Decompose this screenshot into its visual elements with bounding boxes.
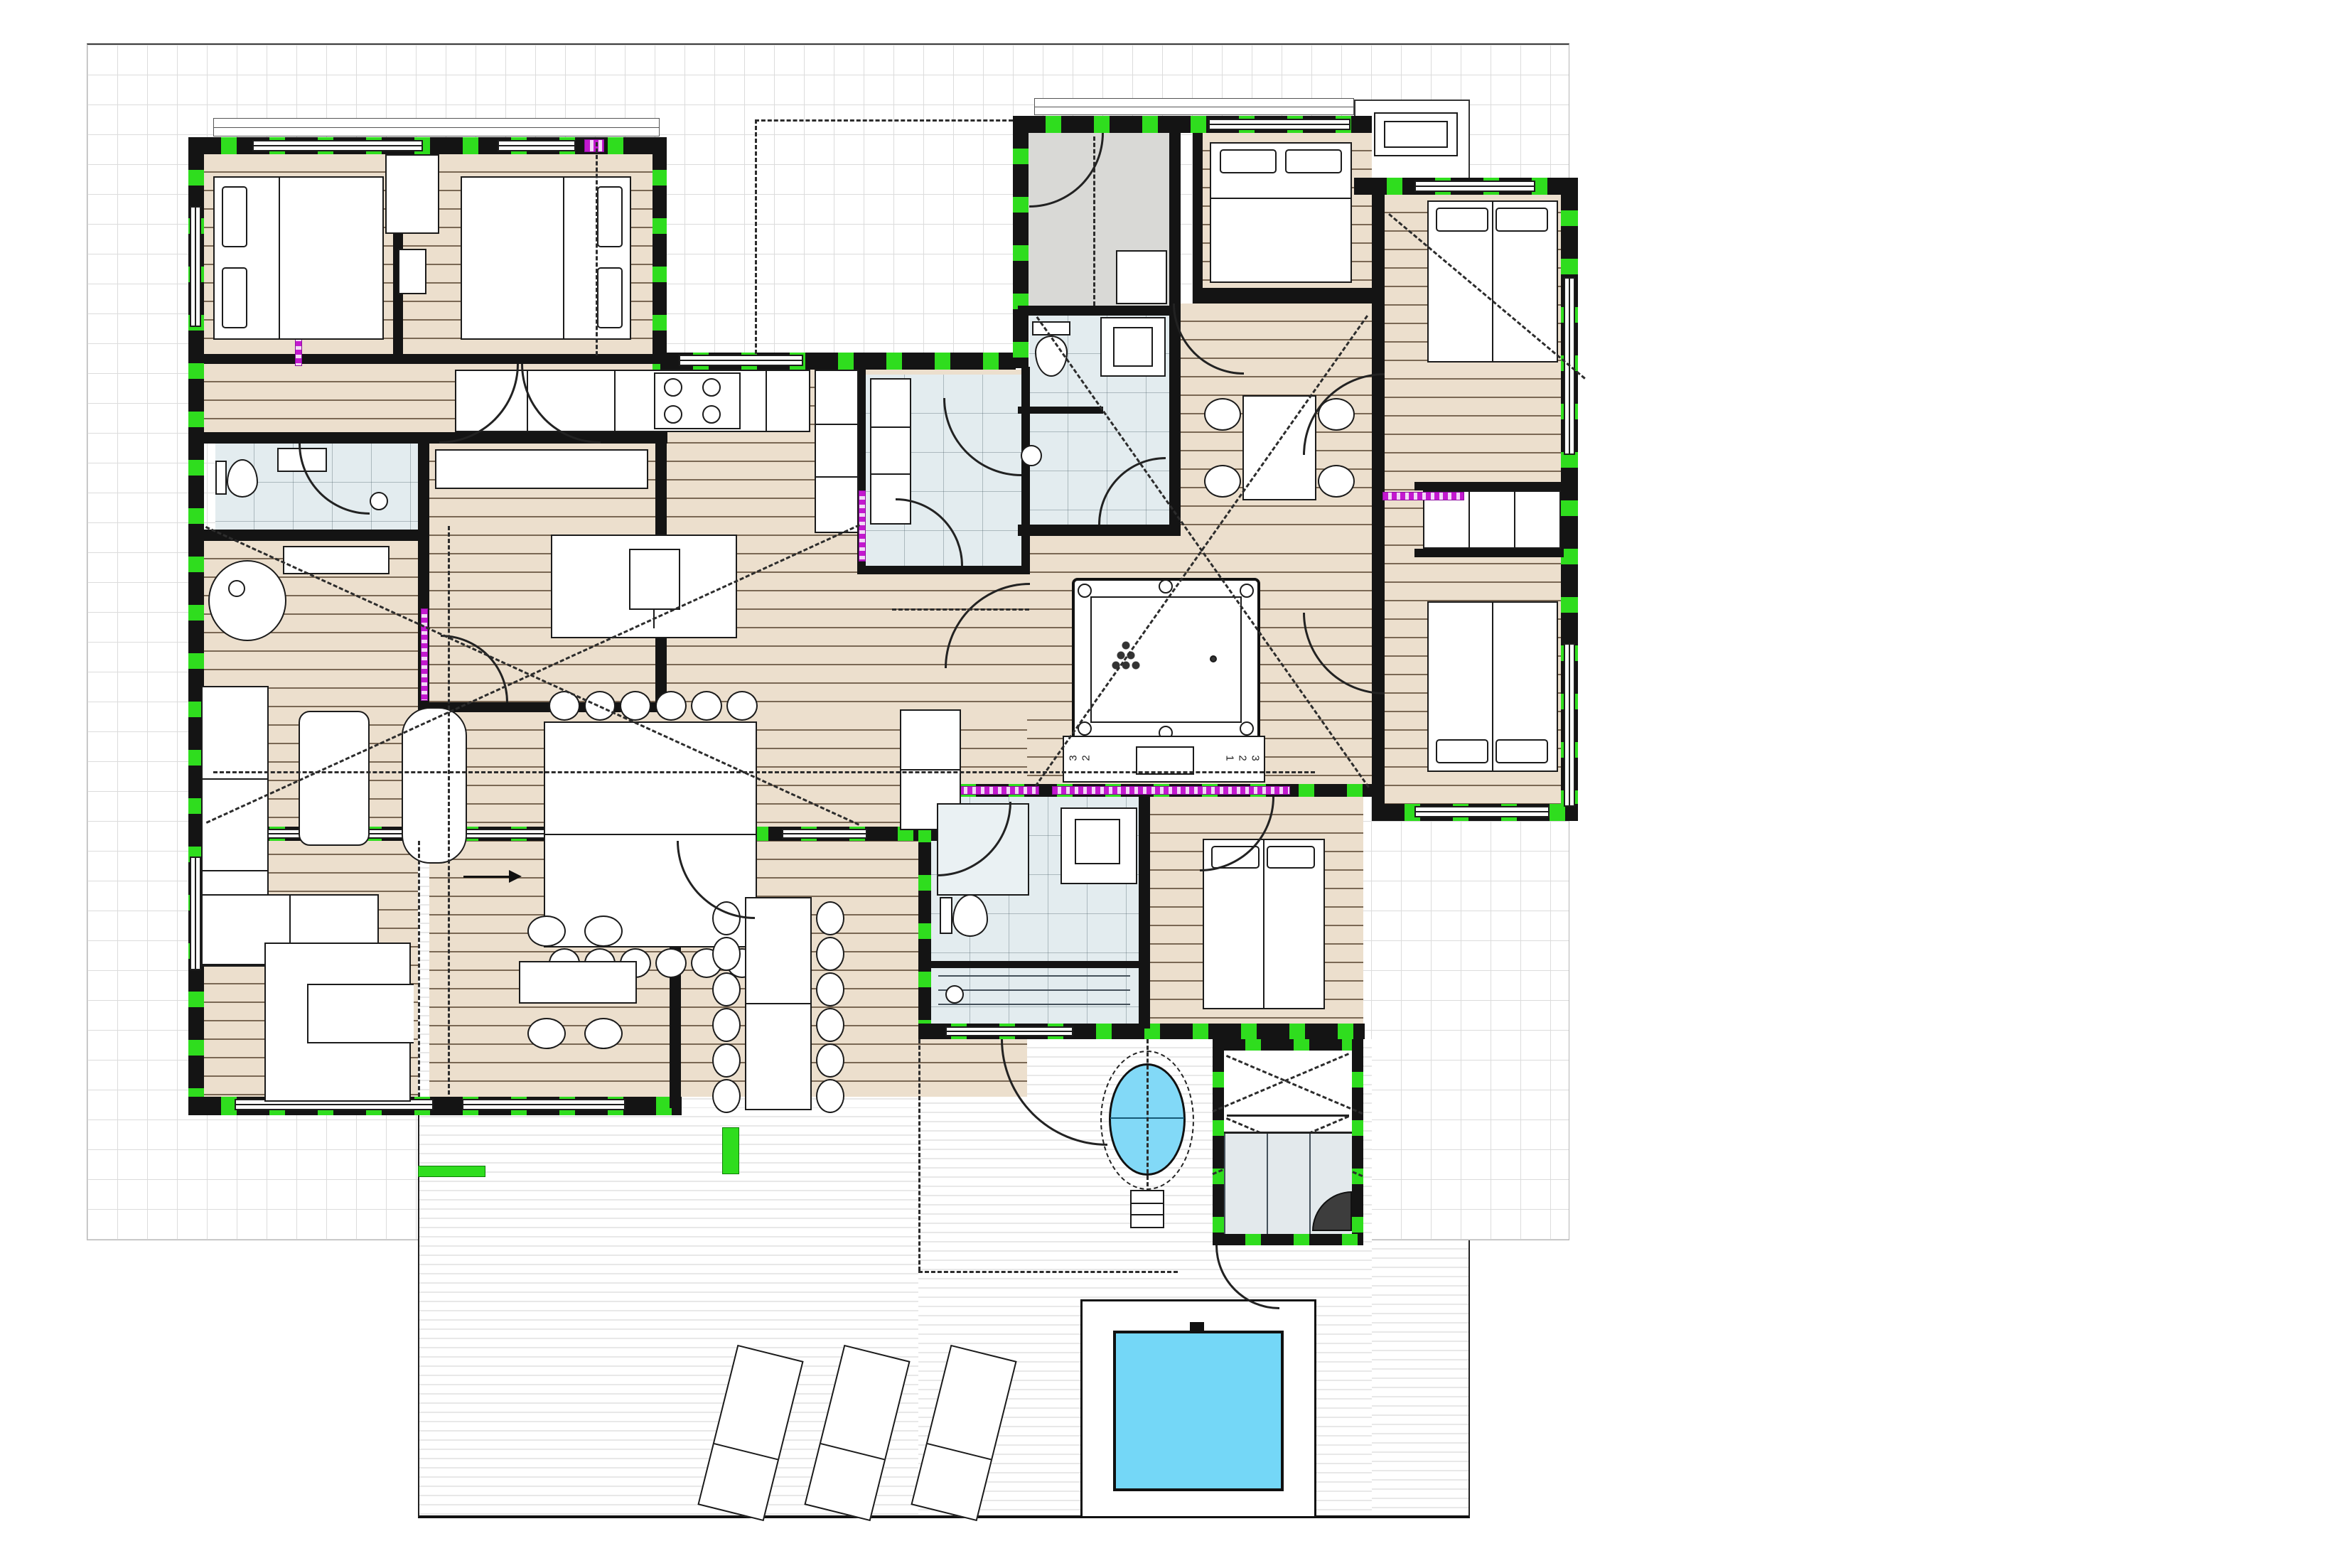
bed-nw-2-pillow-bottom — [597, 267, 623, 328]
dash-hall — [892, 608, 1029, 611]
sliding-track-closet — [421, 608, 428, 701]
window-ne-east-2 — [1564, 643, 1575, 807]
outdoor-kitchen-u-cut — [307, 984, 414, 1043]
bed-ne-lower-centerline — [1492, 603, 1493, 770]
closet-ne-divider-1 — [1468, 490, 1470, 549]
sauna-wall-west — [1213, 1039, 1224, 1245]
wall-west-laundry — [1013, 116, 1029, 368]
bed-nw-2-foldline — [563, 178, 564, 338]
bed-south-centerline — [1263, 840, 1264, 1008]
bed-ne-lower-pillow-1 — [1436, 739, 1488, 763]
wall-bath-bedroom-south — [1139, 794, 1150, 1029]
window-south-block — [945, 1026, 1073, 1036]
window-nw-1 — [252, 140, 423, 151]
main-deck-far-right — [1372, 1240, 1470, 1518]
pool-pocket-tl — [1078, 584, 1092, 598]
window-west-1 — [190, 206, 201, 327]
sauna-wall-south — [1213, 1234, 1363, 1245]
bed-nc-pillow-1 — [1220, 149, 1277, 173]
wood-stove — [208, 560, 286, 641]
outdoor-chair-l3 — [712, 972, 741, 1006]
wall-bath-steam — [931, 961, 1139, 968]
coffee-table — [402, 707, 467, 864]
pool-water — [1113, 1331, 1284, 1491]
outdoor-chair-l4 — [712, 1008, 741, 1042]
canopy-dash-deck-h — [918, 1271, 1178, 1273]
nightstand-nw — [398, 249, 426, 294]
outdoor-chair-l5 — [712, 1043, 741, 1078]
sauna-arrow-line — [1227, 1115, 1349, 1117]
media-label: 2 — [1237, 755, 1249, 761]
bed-ne-upper-centerline — [1492, 202, 1493, 361]
wall-ne-closet-bottom — [1414, 549, 1564, 557]
bed-nc-pillow-2 — [1285, 149, 1342, 173]
media-label: 1 — [1224, 755, 1236, 761]
media-label: 3 — [1068, 755, 1080, 761]
carport-divider-dash — [418, 841, 420, 1097]
window-bedroom3 — [1208, 119, 1350, 130]
wall-wc-south — [1018, 525, 1181, 536]
wall-bedroom3-west — [1193, 133, 1203, 304]
pool-cue-ball — [1210, 655, 1217, 662]
toilet-west-tank — [215, 461, 227, 495]
deck-green-marker-1 — [418, 1166, 485, 1177]
floor-plan-canvas: 3 2 1 2 3 — [0, 0, 2352, 1568]
window-kitchen-north — [679, 355, 803, 366]
entry-arrow-shaft — [463, 876, 509, 878]
carport-chair-2 — [584, 915, 623, 947]
hot-tub-steps — [1130, 1190, 1164, 1228]
wall-ne-closet-top — [1414, 482, 1564, 490]
burner-4 — [702, 405, 721, 424]
window-ne-south — [1414, 806, 1550, 817]
pool-pocket-tr — [1240, 584, 1254, 598]
window-ne-top — [1414, 181, 1535, 192]
planter-inner — [1384, 121, 1448, 148]
shower-drain-west — [370, 492, 388, 510]
section-line-vertical — [448, 526, 450, 1095]
sliding-track-south-2 — [1052, 786, 1290, 795]
bed-ne-lower-pillow-2 — [1495, 739, 1548, 763]
window-west-2 — [190, 857, 201, 970]
sliding-track-top — [584, 139, 604, 152]
dining-chair-t4 — [655, 691, 687, 721]
bed-nw-1-foldline — [279, 178, 280, 338]
bed-nw-1-pillow-bottom — [222, 267, 247, 328]
window-nw-2 — [498, 140, 576, 151]
wall-bath-south — [204, 530, 429, 541]
wardrobe-closet-room — [435, 449, 648, 489]
pool-ladder — [1190, 1322, 1204, 1331]
carport-chair-3 — [527, 1018, 566, 1049]
deck-green-marker-2 — [722, 1127, 739, 1174]
media-label: 3 — [1250, 755, 1262, 761]
sliding-track-ne — [1382, 492, 1464, 500]
media-label: 2 — [1080, 755, 1092, 761]
sauna-wall-east — [1352, 1039, 1363, 1245]
section-line-horizontal — [213, 771, 1315, 773]
breakfast-chair-4 — [1318, 465, 1355, 498]
media-unit-center-box — [1136, 746, 1194, 775]
canopy-dash-court-h — [755, 119, 1013, 122]
canopy-dash-deck-v — [918, 1039, 920, 1271]
toilet-center-tank — [1032, 321, 1070, 335]
dining-chair-b4 — [655, 948, 687, 978]
wc-partition — [1018, 407, 1103, 414]
bed-nc-foldline — [1211, 198, 1350, 199]
burner-2 — [702, 378, 721, 397]
island-sink — [629, 549, 680, 610]
laundry-appliance — [1116, 250, 1167, 304]
pool-pocket-br — [1240, 721, 1254, 736]
window-living-south-3 — [782, 829, 867, 839]
sauna-wall-north — [1213, 1039, 1363, 1051]
bed-south-pillow-2 — [1267, 846, 1315, 869]
kitchen-tall-units — [815, 370, 859, 533]
burner-3 — [664, 405, 682, 424]
window-carport-south-2 — [462, 1099, 625, 1110]
carport-chair-1 — [527, 915, 566, 947]
outdoor-chair-r1 — [816, 901, 844, 935]
outdoor-chair-l6 — [712, 1079, 741, 1113]
bed-ne-upper-pillow-1 — [1436, 208, 1488, 232]
outdoor-chair-r6 — [816, 1079, 844, 1113]
dining-chair-t5 — [691, 691, 722, 721]
outdoor-chair-r2 — [816, 937, 844, 971]
breakfast-chair-1 — [1204, 398, 1241, 431]
wall-mudroom-south — [857, 566, 1030, 574]
dining-chair-t6 — [726, 691, 758, 721]
wall-bedroom3-south — [1203, 288, 1372, 304]
dash-nw-divider — [596, 142, 598, 355]
outdoor-dining-table — [745, 897, 812, 1110]
outdoor-chair-l2 — [712, 937, 741, 971]
outdoor-chair-r5 — [816, 1043, 844, 1078]
bed-ne-upper-pillow-2 — [1495, 208, 1548, 232]
carport-table — [519, 961, 637, 1004]
entry-arrow-head — [509, 870, 522, 883]
bed-nw-2-pillow-top — [597, 186, 623, 247]
washbasin-center — [1113, 327, 1153, 367]
closet-ne-divider-2 — [1514, 490, 1515, 549]
steam-bench-line-2 — [938, 989, 1130, 991]
wood-stove-flue — [228, 580, 245, 597]
carport-chair-4 — [584, 1018, 623, 1049]
wall-beds-hall — [204, 354, 666, 364]
eaves-strip-northwest — [213, 118, 660, 136]
outdoor-chair-r4 — [816, 1008, 844, 1042]
burner-1 — [664, 378, 682, 397]
toilet-south-tank — [940, 897, 952, 934]
outdoor-chair-r3 — [816, 972, 844, 1006]
closet-niche-nw — [385, 154, 439, 234]
washbasin-south — [1075, 819, 1120, 864]
wall-laundry-wc — [1018, 306, 1169, 316]
breakfast-chair-3 — [1204, 465, 1241, 498]
armchair — [299, 711, 370, 846]
bed-nw-1-pillow-top — [222, 186, 247, 247]
steam-bench-line-3 — [938, 1004, 1130, 1005]
steam-bench-line-1 — [938, 975, 1130, 977]
steam-drain — [945, 985, 964, 1004]
basin-center-small — [1021, 445, 1042, 466]
eaves-strip-north — [1034, 98, 1354, 115]
canopy-dash-court-v — [755, 119, 757, 354]
wall-mudroom-east — [1021, 367, 1030, 574]
